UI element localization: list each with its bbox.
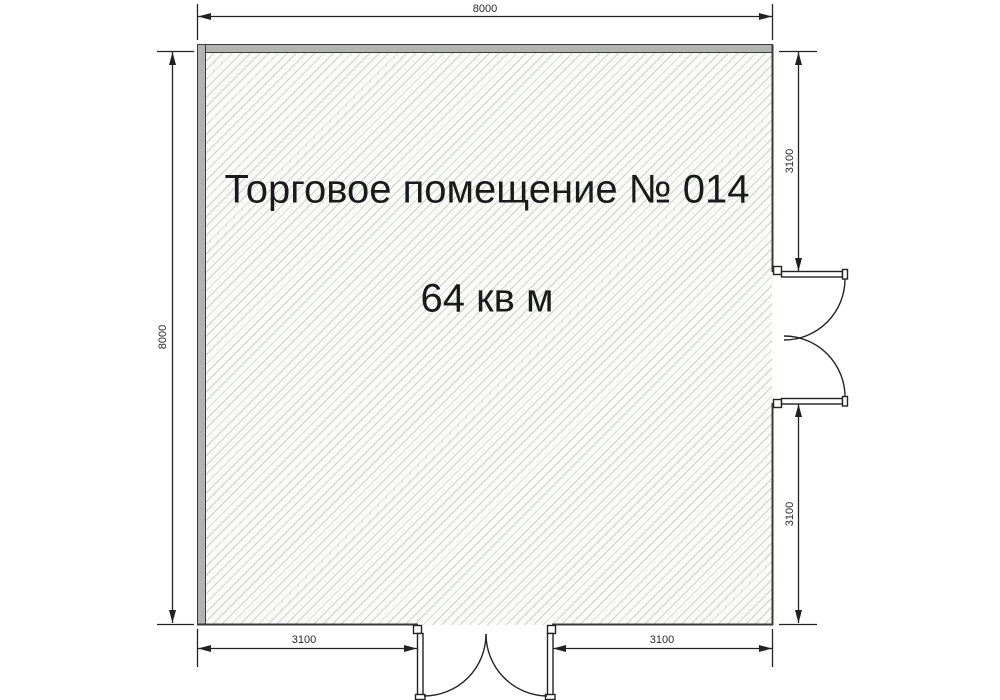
room-name-label: Торговое помещение № 014	[224, 168, 749, 213]
floor-plan-canvas: Торговое помещение № 014 64 кв м 8000 80…	[0, 0, 1000, 700]
room-floor-hatch	[205, 52, 772, 625]
dimension-label-right-lower: 3100	[784, 502, 796, 526]
wall-left	[197, 44, 206, 625]
wall-top	[197, 44, 773, 53]
double-door-bottom-icon	[414, 626, 556, 700]
dimension-label-bottom-right: 3100	[650, 634, 674, 646]
dimension-label-bottom-left: 3100	[292, 634, 316, 646]
room-area-label: 64 кв м	[421, 277, 554, 322]
dimension-label-right-upper: 3100	[784, 149, 796, 173]
double-door-right-icon	[774, 267, 848, 408]
dimension-label-top: 8000	[473, 3, 497, 15]
dimension-label-left: 8000	[157, 325, 169, 349]
